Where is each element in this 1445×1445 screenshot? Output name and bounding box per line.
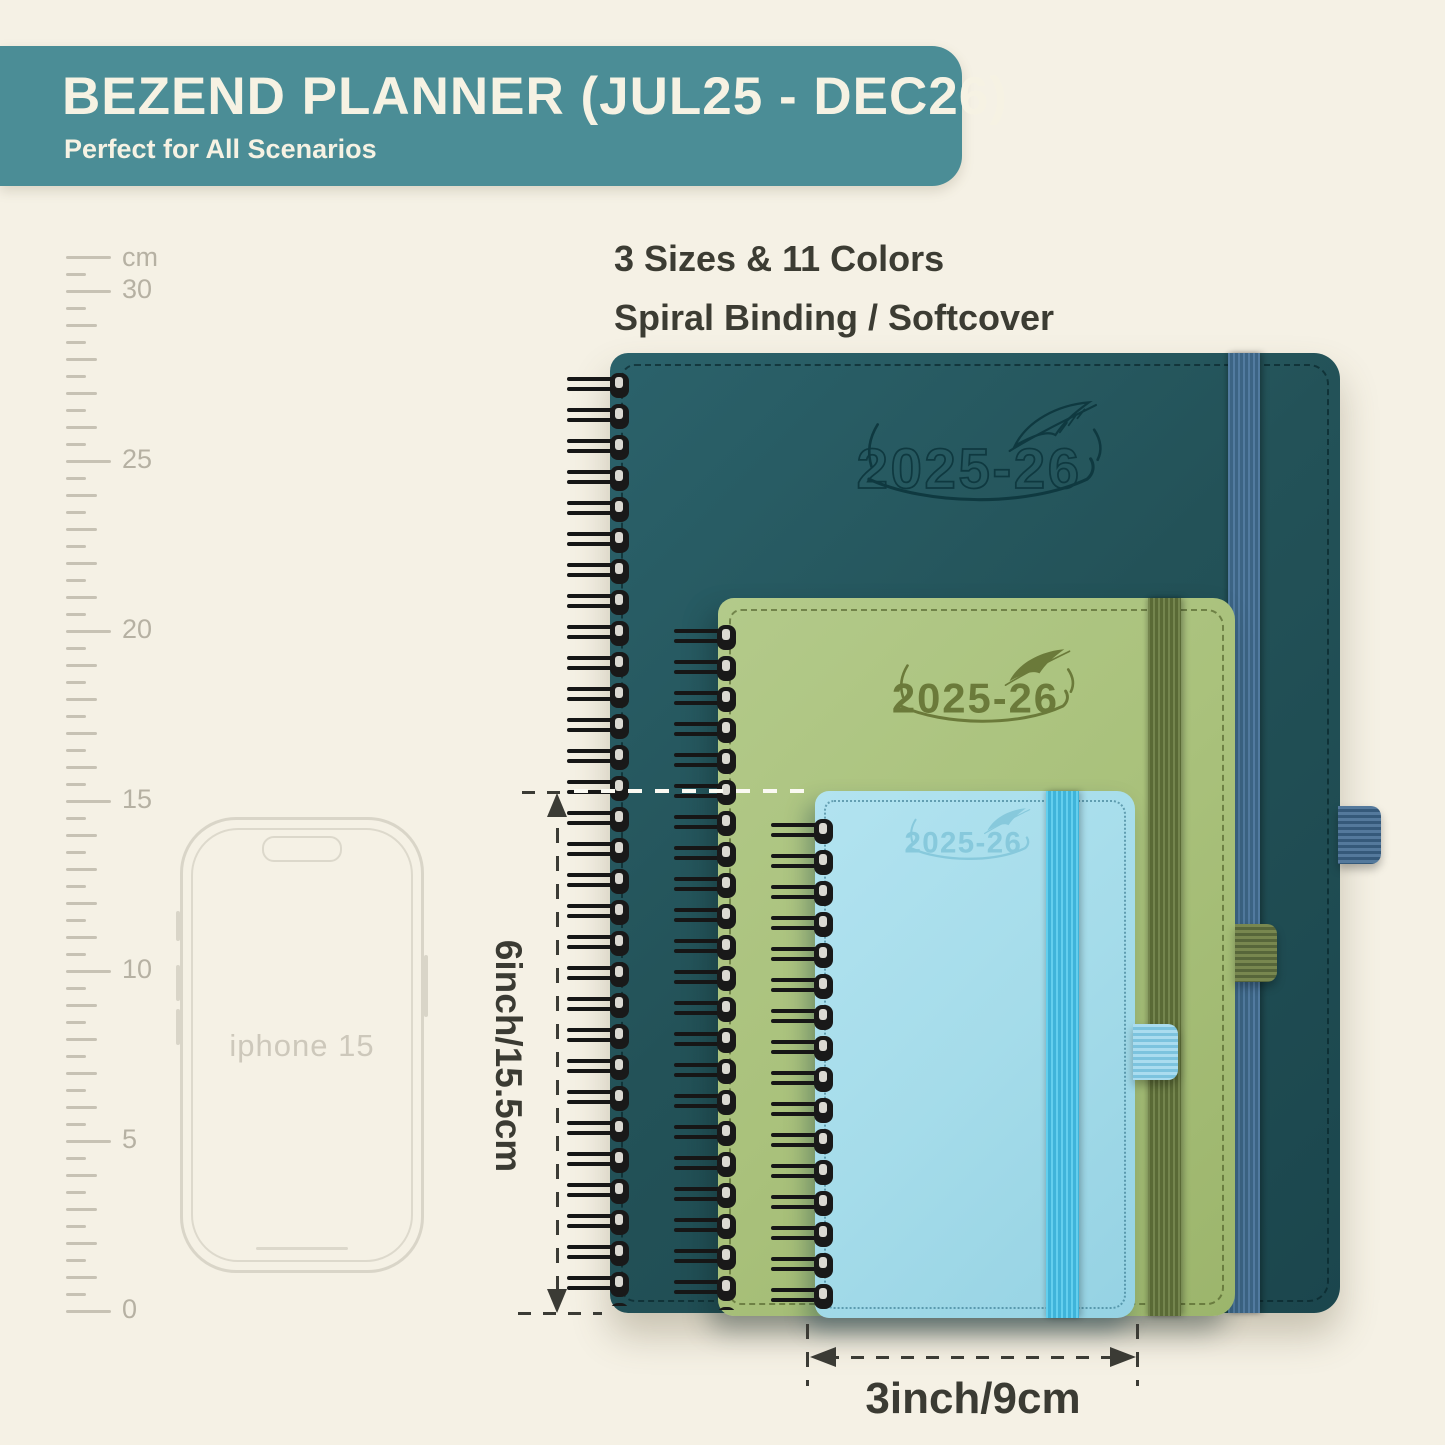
ruler-tick — [66, 783, 86, 786]
dimension-extension-line — [518, 1312, 602, 1315]
ruler-tick — [66, 358, 97, 361]
ruler-tick — [66, 715, 86, 718]
planner-large-emblem: 2025-26 — [846, 398, 1110, 525]
ruler-tick — [66, 698, 97, 701]
width-dimension-label: 3inch/9cm — [828, 1374, 1118, 1424]
planner-small-pen-loop — [1133, 1024, 1178, 1080]
planner-large-spiral-binding — [563, 370, 643, 1306]
phone-side-button — [424, 955, 428, 1017]
ruler-tick — [66, 426, 97, 429]
ruler-label: 20 — [122, 614, 152, 645]
arrow-right-icon — [1110, 1347, 1136, 1367]
arrow-down-icon — [547, 1289, 567, 1313]
ruler-tick — [66, 681, 86, 684]
ruler-tick — [66, 749, 86, 752]
ruler-tick — [66, 868, 97, 871]
phone-side-button — [176, 965, 180, 1001]
dimension-extension-line — [806, 1324, 809, 1386]
ruler-tick — [66, 273, 86, 276]
ruler-tick — [66, 1293, 86, 1296]
planner-small-elastic-band — [1046, 791, 1079, 1318]
ruler-tick — [66, 392, 97, 395]
arrow-up-icon — [547, 793, 567, 817]
ruler-tick — [66, 936, 97, 939]
ruler-tick — [66, 970, 111, 973]
ruler: cm302520151050 — [66, 256, 186, 1331]
stitching — [824, 800, 1126, 1309]
ruler-tick — [66, 409, 86, 412]
ruler-tick — [66, 1089, 86, 1092]
phone-outline: iphone 15 — [180, 817, 424, 1273]
features-line-1: 3 Sizes & 11 Colors — [614, 238, 1054, 280]
ruler-tick — [66, 477, 86, 480]
ruler-label: 5 — [122, 1124, 137, 1155]
planner-large-year: 2025-26 — [857, 437, 1082, 500]
ruler-tick — [66, 885, 86, 888]
ruler-tick — [66, 545, 86, 548]
phone-label: iphone 15 — [183, 1028, 421, 1064]
planner-medium-year: 2025-26 — [892, 675, 1059, 722]
ruler-tick — [66, 1225, 86, 1228]
features-line-2: Spiral Binding / Softcover — [614, 297, 1054, 339]
ruler-tick — [66, 1157, 86, 1160]
phone-side-button — [176, 1009, 180, 1045]
title-banner: BEZEND PLANNER (JUL25 - DEC26) Perfect f… — [0, 46, 962, 186]
planner-medium-spiral-binding — [670, 622, 750, 1310]
product-title: BEZEND PLANNER (JUL25 - DEC26) — [62, 66, 1008, 127]
ruler-tick — [66, 579, 86, 582]
ruler-tick — [66, 307, 86, 310]
planner-small-emblem: 2025-26 — [899, 806, 1037, 872]
ruler-tick — [66, 664, 97, 667]
features-note: 3 Sizes & 11 Colors Spiral Binding / Sof… — [614, 238, 1054, 339]
ruler-label: 15 — [122, 784, 152, 815]
ruler-tick — [66, 1106, 97, 1109]
ruler-tick — [66, 902, 97, 905]
planner-medium-elastic-band — [1148, 598, 1181, 1316]
ruler-label: 0 — [122, 1294, 137, 1325]
ruler-tick — [66, 953, 86, 956]
ruler-label: cm — [122, 242, 158, 273]
planner-small-spiral-binding — [767, 816, 847, 1310]
dimension-line-horizontal — [826, 1356, 1118, 1359]
ruler-tick — [66, 1310, 111, 1313]
ruler-tick — [66, 1208, 97, 1211]
dimension-reference-line — [574, 789, 816, 793]
ruler-tick — [66, 1072, 97, 1075]
planner-medium-pen-loop — [1235, 924, 1277, 982]
ruler-tick — [66, 443, 86, 446]
ruler-tick — [66, 1242, 97, 1245]
ruler-tick — [66, 1259, 86, 1262]
ruler-tick — [66, 817, 86, 820]
planner-small-year: 2025-26 — [905, 827, 1023, 860]
height-dimension-label: 6inch/15.5cm — [487, 940, 529, 1172]
ruler-tick — [66, 987, 86, 990]
planner-large-pen-loop — [1338, 806, 1381, 864]
product-subtitle: Perfect for All Scenarios — [64, 134, 377, 165]
ruler-tick — [66, 596, 97, 599]
ruler-tick — [66, 613, 86, 616]
ruler-tick — [66, 375, 86, 378]
ruler-tick — [66, 290, 111, 293]
phone-side-button — [176, 911, 180, 941]
ruler-tick — [66, 1140, 111, 1143]
ruler-tick — [66, 630, 111, 633]
ruler-tick — [66, 1021, 86, 1024]
ruler-tick — [66, 511, 86, 514]
ruler-tick — [66, 1004, 97, 1007]
ruler-tick — [66, 732, 97, 735]
phone-dynamic-island — [262, 836, 342, 862]
ruler-tick — [66, 256, 111, 259]
ruler-label: 10 — [122, 954, 152, 985]
ruler-tick — [66, 800, 111, 803]
ruler-tick — [66, 1191, 86, 1194]
ruler-tick — [66, 528, 97, 531]
ruler-label: 25 — [122, 444, 152, 475]
ruler-tick — [66, 851, 86, 854]
planner-medium-emblem: 2025-26 — [884, 646, 1080, 740]
ruler-tick — [66, 494, 97, 497]
ruler-tick — [66, 562, 97, 565]
ruler-tick — [66, 919, 86, 922]
ruler-tick — [66, 1055, 86, 1058]
phone-home-bar — [256, 1247, 348, 1250]
dimension-extension-line — [1136, 1324, 1139, 1386]
dimension-line-vertical — [556, 800, 559, 1300]
ruler-tick — [66, 1276, 97, 1279]
ruler-label: 30 — [122, 274, 152, 305]
ruler-tick — [66, 341, 86, 344]
ruler-tick — [66, 1174, 97, 1177]
ruler-tick — [66, 460, 111, 463]
ruler-tick — [66, 766, 97, 769]
ruler-tick — [66, 1038, 97, 1041]
product-infographic: BEZEND PLANNER (JUL25 - DEC26) Perfect f… — [0, 0, 1445, 1445]
ruler-tick — [66, 834, 97, 837]
ruler-tick — [66, 324, 97, 327]
ruler-tick — [66, 1123, 86, 1126]
ruler-tick — [66, 647, 86, 650]
arrow-left-icon — [810, 1347, 836, 1367]
